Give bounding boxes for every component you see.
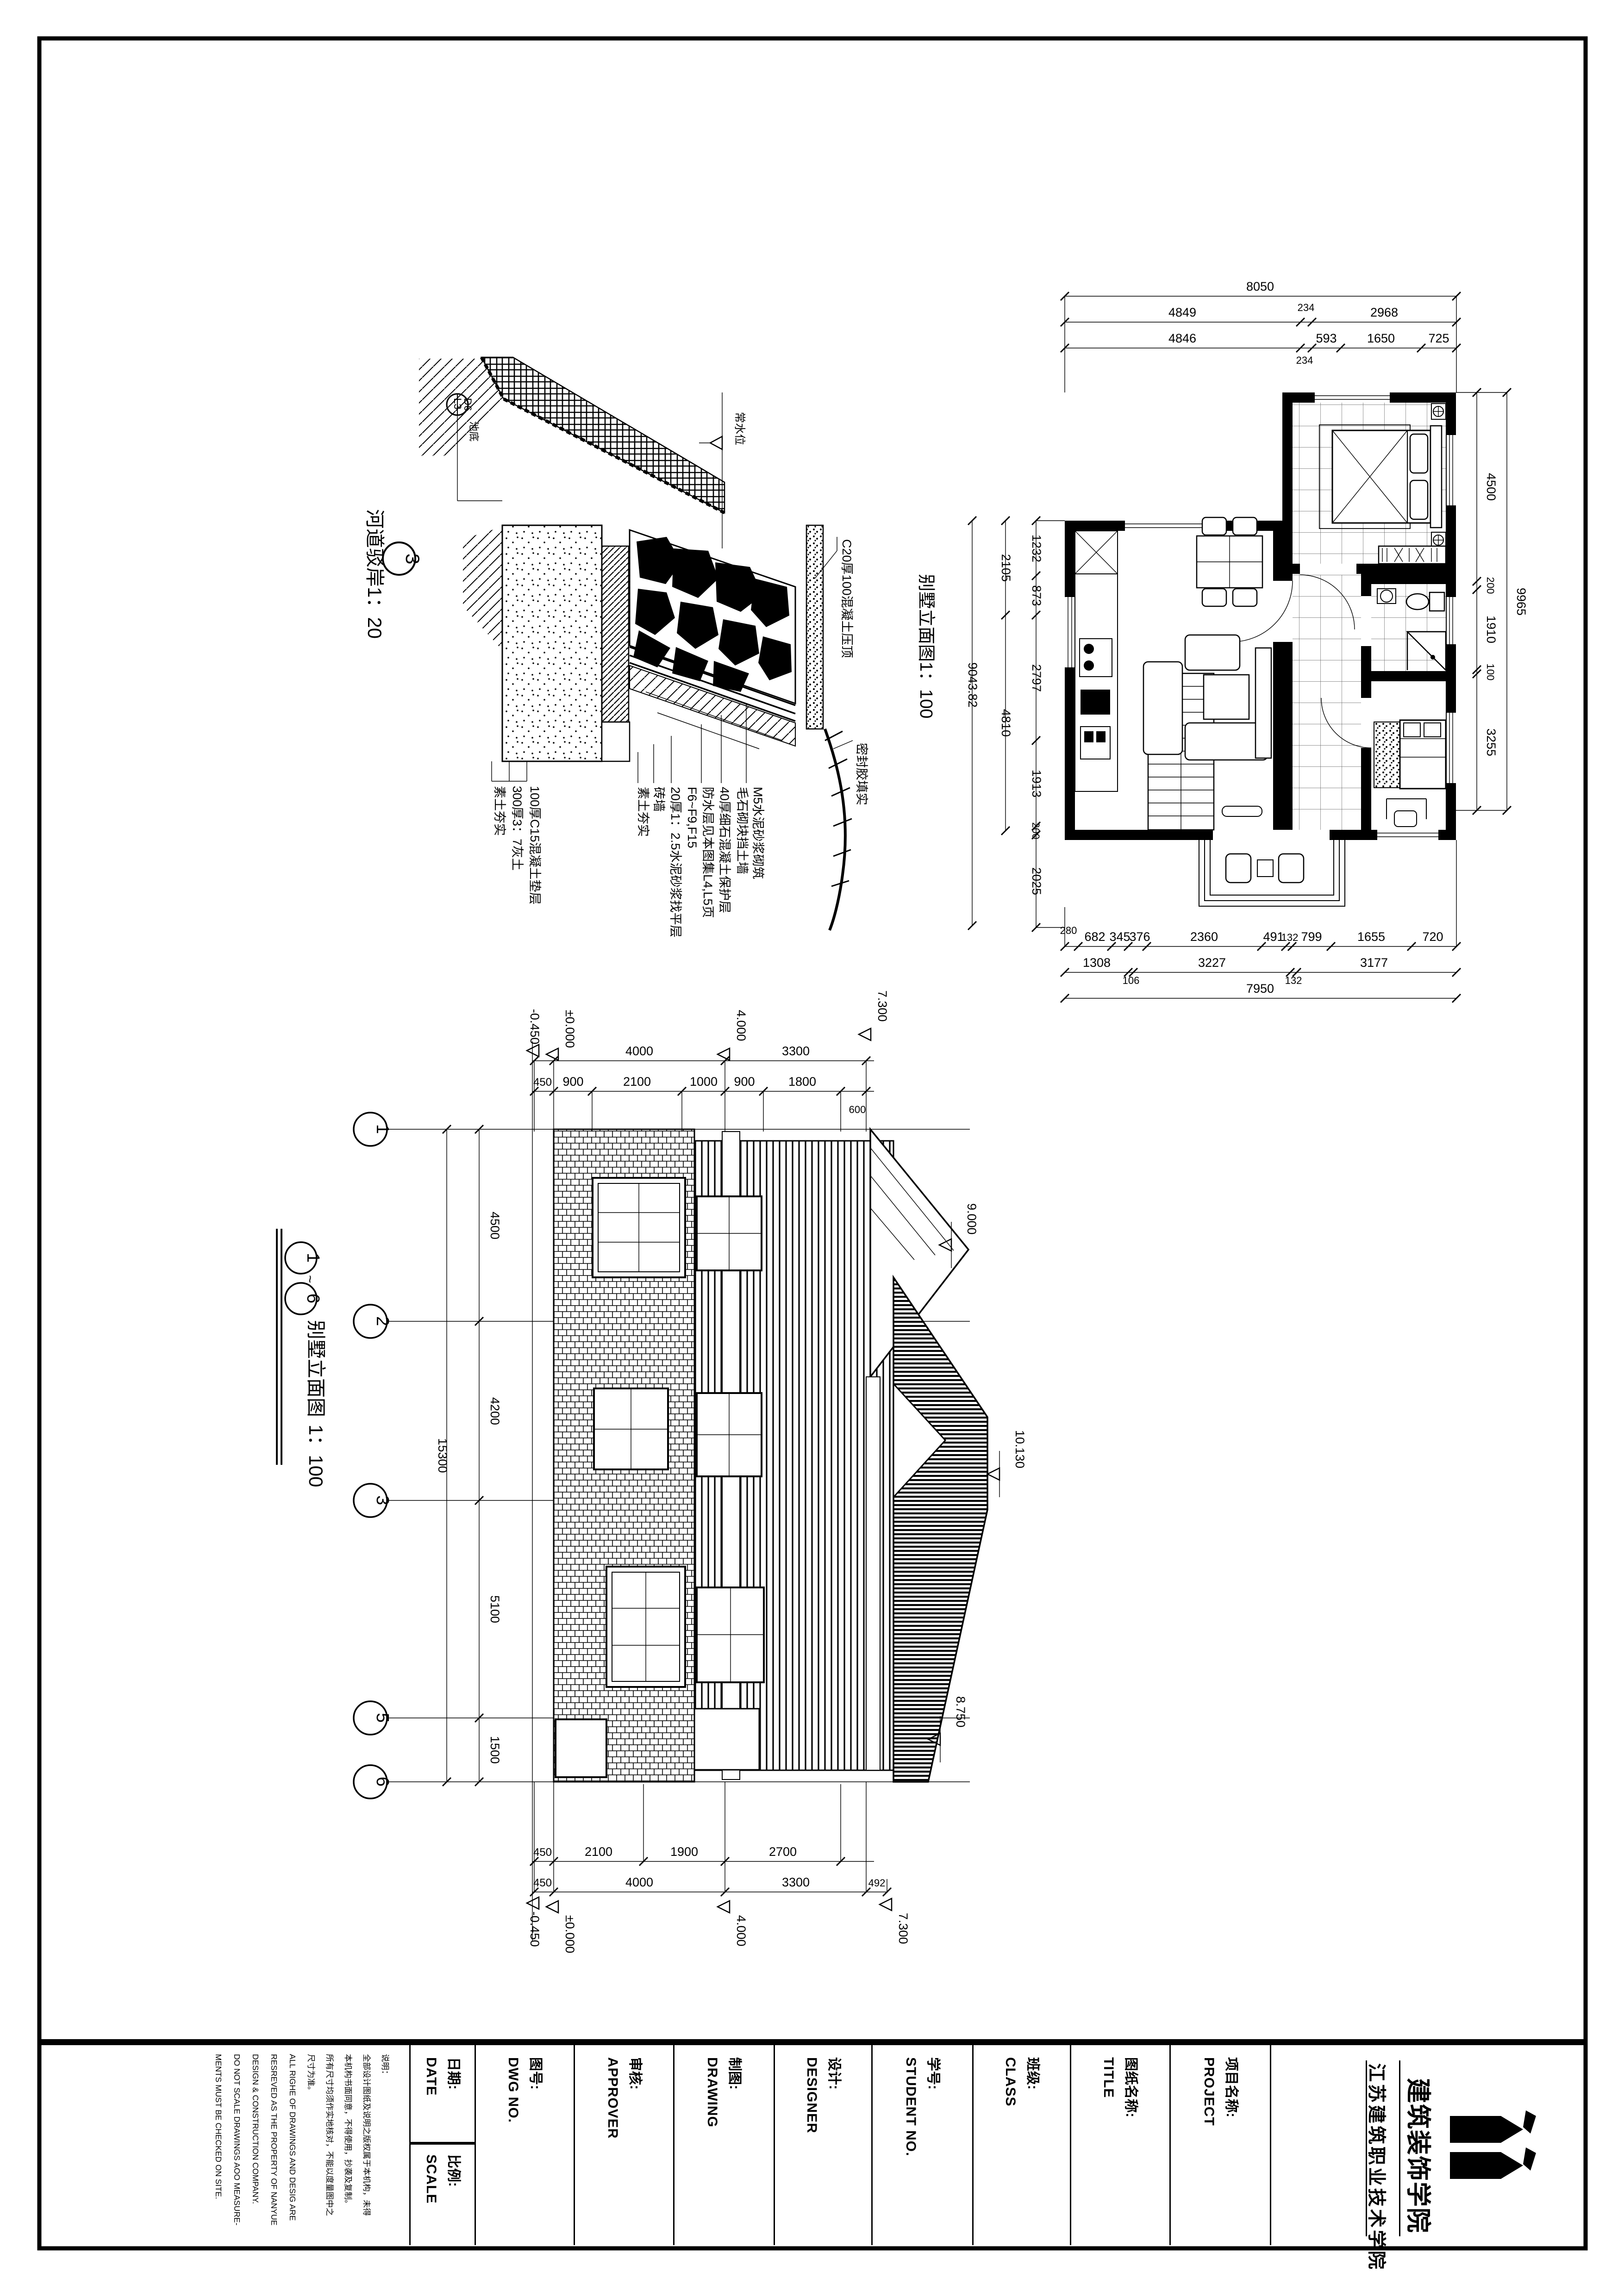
sheet-canvas: 常水位 D6 L3 池底 100厚C15混凝土垫层 300厚3：7灰土 素土夯实…: [0, 0, 1624, 2296]
dim: 492: [868, 1877, 886, 1889]
water-level-label: 常水位: [733, 412, 746, 445]
field-project: 项目名称:PROJECT: [1198, 2057, 1242, 2126]
dim: 4500: [1484, 473, 1498, 501]
detail-title: 河道驳岸1：20: [364, 509, 386, 639]
detail-label: 防水层见本图集L4,L5页: [701, 787, 715, 918]
level: -0.450: [528, 1009, 542, 1045]
dim: 1000: [690, 1075, 718, 1089]
dim: 200: [1485, 577, 1496, 594]
kitchen-fixtures: [1075, 531, 1118, 791]
dim: 7950: [1246, 982, 1274, 996]
axis-bubble: 2: [373, 1316, 392, 1326]
title-block-top-rule: [39, 2039, 1586, 2045]
dim: 132: [1281, 932, 1299, 943]
dim: 9043.82: [966, 662, 980, 708]
dim: 2360: [1190, 930, 1218, 944]
plan-dims-left: 9043.82 2105 4810 1232 873 2797 1913 200…: [966, 516, 1065, 932]
dim: 4000: [625, 1875, 653, 1889]
dim: 600: [849, 1104, 866, 1115]
school-name: 江苏建筑职业技术学院: [1365, 2063, 1392, 2271]
dim: 3300: [782, 1044, 810, 1058]
coping-label: C20厚100混凝土压顶: [840, 539, 854, 658]
axis-ref-start: 1: [303, 1253, 323, 1263]
dim: 3177: [1360, 956, 1388, 970]
level: ±0.000: [563, 1010, 577, 1048]
level: 10.130: [1013, 1430, 1027, 1468]
dim: 376: [1129, 930, 1150, 944]
floor-plan: 8050 4849 234 2968 4846 234 593 1650 725…: [916, 280, 1528, 1002]
elevation-title-scale: 1：100: [305, 1425, 327, 1487]
divider: [1169, 2045, 1171, 2245]
dim: 725: [1428, 331, 1449, 345]
elevation-drawing: 1 2 3 5 6 15300 4500 4200 5100 1500: [277, 990, 1027, 1953]
detail-number: 3: [402, 554, 424, 564]
axis-bubble: 5: [373, 1713, 392, 1723]
detail-label: 素土夯实: [636, 787, 650, 837]
field-title: 图纸名称:TITLE: [1097, 2057, 1142, 2117]
level: 4.000: [734, 1915, 748, 1947]
field-student-no: 学号:STUDENT NO.: [899, 2057, 944, 2156]
axis-ref-tilde: ~: [302, 1275, 318, 1283]
divider: [1070, 2045, 1071, 2245]
dim: 2797: [1030, 664, 1043, 692]
detail-label: 砖墙: [652, 787, 666, 812]
notes-title: 说明：: [376, 2054, 394, 2239]
detail-label: 100厚C15混凝土垫层: [528, 786, 542, 905]
dim: 2100: [623, 1075, 651, 1089]
detail-drawing-riverbank: 常水位 D6 L3 池底 100厚C15混凝土垫层 300厚3：7灰土 素土夯实…: [364, 357, 868, 938]
dim: 4200: [488, 1397, 502, 1425]
dim: 2105: [999, 554, 1013, 582]
axis-bubble: 6: [373, 1777, 392, 1786]
dim: 234: [1298, 302, 1315, 313]
dim: 100: [1485, 664, 1496, 681]
dim: 1800: [788, 1075, 816, 1089]
elevation-axis-dims: 15300 4500 4200 5100 1500: [436, 1125, 502, 1786]
level: -0.450: [528, 1911, 542, 1947]
dim: 1500: [488, 1736, 502, 1764]
dim: 682: [1084, 930, 1105, 944]
dim: 450: [533, 1846, 552, 1859]
college-logo-text: 建筑装饰学院: [1402, 2078, 1439, 2234]
dim: 280: [1060, 925, 1077, 936]
dim: 2100: [585, 1845, 612, 1859]
detail-label: 20厚1：2.5水泥砂浆找平层: [668, 787, 682, 938]
dim: 2700: [769, 1845, 797, 1859]
axis-ref-end: 6: [303, 1294, 323, 1303]
level: ±0.000: [563, 1915, 577, 1953]
dim: 799: [1301, 930, 1322, 944]
level: 8.750: [954, 1696, 968, 1728]
divider: [673, 2045, 675, 2245]
dim: 873: [1030, 585, 1043, 606]
dim: 200: [1030, 822, 1042, 840]
dim: 345: [1109, 930, 1130, 944]
dim: 2968: [1370, 305, 1398, 319]
dim: 3300: [782, 1875, 810, 1889]
dim: 1913: [1030, 770, 1043, 797]
dim: 1655: [1357, 930, 1385, 944]
detail-label: 300厚3：7灰土: [510, 786, 524, 871]
callout-bottom: L3: [452, 398, 463, 409]
dim: 450: [533, 1076, 552, 1089]
field-drawing: 制图:DRAWING: [701, 2057, 745, 2128]
field-designer: 设计:DESIGNER: [800, 2057, 845, 2134]
dim: 106: [1123, 975, 1140, 986]
divider: [871, 2045, 873, 2245]
dim: 8050: [1246, 280, 1274, 293]
dim: 4000: [625, 1044, 653, 1058]
dim: 3227: [1198, 956, 1226, 970]
detail-label: 40厚细石混凝土保护层: [718, 787, 731, 913]
dim: 15300: [436, 1438, 450, 1473]
dim: 4849: [1168, 305, 1196, 319]
field-date: 日期:DATE: [420, 2057, 464, 2096]
porch: [1199, 840, 1345, 906]
dim: 1650: [1367, 331, 1395, 345]
dim: 3255: [1484, 728, 1498, 756]
dim: 5100: [488, 1595, 502, 1623]
dim: 234: [1296, 355, 1313, 366]
bedroom2: [1374, 720, 1446, 827]
elevation-dims-top: 4000 3300 450 900 2100 1000 900 1800 600…: [527, 990, 889, 1132]
dim: 900: [734, 1075, 755, 1089]
divider: [1270, 2045, 1271, 2245]
elevation-building: [532, 1041, 987, 1941]
dim: 9965: [1514, 588, 1528, 616]
dim: 1232: [1030, 535, 1043, 562]
axis-bubble: 1: [373, 1124, 392, 1134]
school-name-rule: [1399, 2060, 1400, 2236]
dim: 4846: [1168, 331, 1196, 345]
divider: [409, 2045, 411, 2245]
field-approver: 审核:APPROVER: [601, 2057, 646, 2139]
dim: 450: [533, 1877, 552, 1889]
dim: 2025: [1030, 867, 1043, 895]
field-dwg-no: 图号:DWG NO.: [502, 2057, 546, 2123]
dim: 1910: [1484, 616, 1498, 643]
level: 9.000: [965, 1203, 979, 1235]
level: 7.300: [875, 990, 889, 1022]
dim: 720: [1422, 930, 1443, 944]
divider: [574, 2045, 575, 2245]
detail-label: M5水泥砂浆砌筑: [751, 787, 765, 879]
date-scale-divider: [409, 2142, 475, 2145]
dim: 132: [1285, 975, 1302, 986]
divider: [475, 2045, 476, 2245]
detail-label: 素土夯实: [493, 786, 506, 836]
drawing-sheet: 常水位 D6 L3 池底 100厚C15混凝土垫层 300厚3：7灰土 素土夯实…: [0, 0, 1624, 2296]
dim: 1308: [1083, 956, 1111, 970]
axis-bubble: 3: [373, 1495, 392, 1505]
dim: 593: [1316, 331, 1337, 345]
level: 4.000: [734, 1010, 748, 1041]
elevation-dims-bottom: 450 2100 1900 2700 450 4000 3300 492 -0.…: [527, 1782, 910, 1953]
detail-label: F6~F9,F15: [685, 787, 699, 848]
field-class: 班级:CLASS: [999, 2057, 1043, 2107]
level: 7.300: [896, 1913, 910, 1944]
divider: [972, 2045, 974, 2245]
dim: 4500: [488, 1212, 502, 1239]
notes-block: 说明： 全部设计图纸及说明之版权属于本机构，未得 本机构书面同意，不得使用，抄袭…: [209, 2054, 394, 2239]
elevation-title-text: 别墅立面图: [305, 1320, 327, 1417]
college-logo-icon: [1450, 2110, 1536, 2179]
plan-dims-right: 4500 200 1910 100 3255 9965: [1456, 388, 1528, 815]
pool-bottom-label: 池底: [468, 421, 480, 442]
field-scale: 比例:SCALE: [420, 2154, 464, 2204]
dim: 900: [562, 1075, 583, 1089]
divider: [774, 2045, 775, 2245]
elevation-title: 1 ~ 6 别墅立面图 1：100: [277, 1229, 327, 1487]
detail-label: 毛石砌块挡土墙: [735, 787, 749, 874]
seal-label: 密封胶填实: [855, 743, 868, 805]
dim: 4810: [999, 709, 1013, 737]
plan-dims-top: 8050 4849 234 2968 4846 234 593 1650 725: [1061, 280, 1461, 392]
plan-side-label: 别墅立面图1：100: [916, 574, 936, 719]
dim: 1900: [670, 1845, 698, 1859]
